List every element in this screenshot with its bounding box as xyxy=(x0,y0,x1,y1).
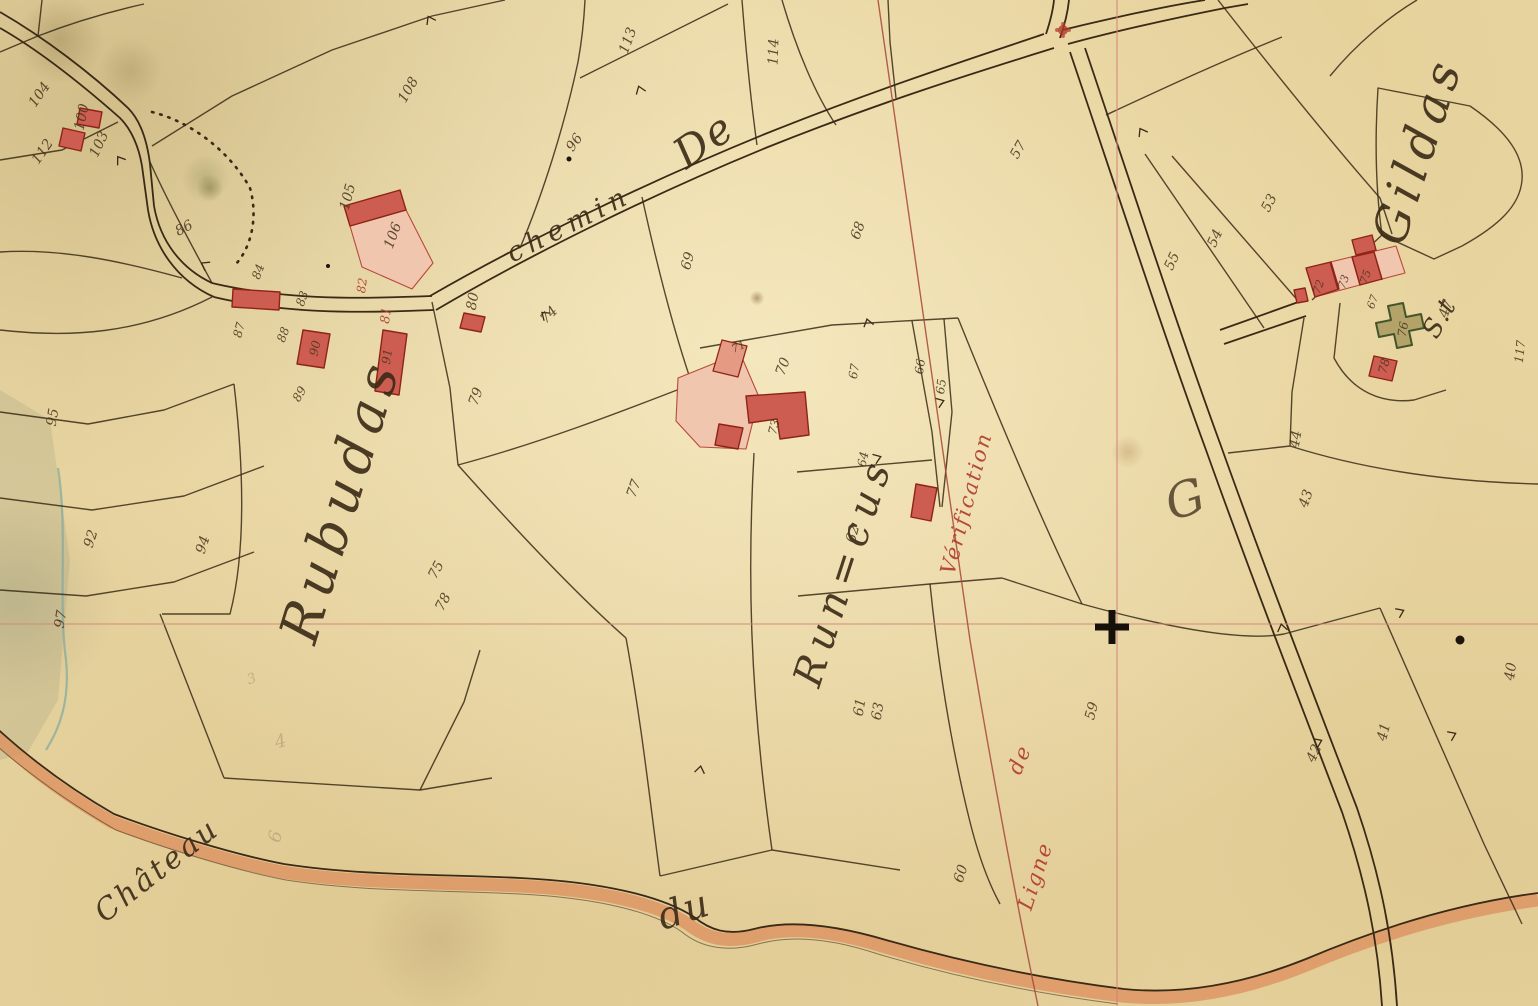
parcel-number: 77 xyxy=(624,477,645,499)
parcel-number: 80 xyxy=(464,291,483,311)
parcel-boundary xyxy=(224,778,492,790)
road-edge xyxy=(1224,316,1306,344)
place-label-rubudas: Rubudas xyxy=(267,349,414,651)
building xyxy=(232,289,280,310)
parcel-boundary xyxy=(458,385,690,465)
boundary-tick xyxy=(1447,729,1458,741)
parcel-boundary xyxy=(1218,0,1392,234)
parcel-number: 40 xyxy=(1502,661,1520,682)
building xyxy=(460,313,485,332)
calvary-symbol xyxy=(1067,28,1071,32)
parcel-number: 66 xyxy=(912,358,928,375)
parcel-number: 3 xyxy=(245,670,259,688)
parcel-number: 97 xyxy=(52,609,71,629)
parcel-number: 104 xyxy=(26,79,54,110)
parcel-number: 70 xyxy=(773,355,794,377)
ink-dot xyxy=(1456,636,1465,645)
parcel-number: 88 xyxy=(274,325,293,344)
parcel-number: 55 xyxy=(1161,250,1183,273)
parcel-boundary xyxy=(1172,156,1300,303)
parcel-number: 63 xyxy=(869,701,888,721)
road-edge xyxy=(1085,48,1397,1006)
parcel-boundary xyxy=(1380,608,1522,924)
parcel-boundary xyxy=(432,302,458,465)
parcel-number: 91 xyxy=(379,348,395,365)
parcel-number: 41 xyxy=(1374,721,1394,743)
road-edge xyxy=(1068,4,1248,44)
ink-dot xyxy=(326,264,330,268)
boundary-tick xyxy=(1395,606,1406,618)
road-edge xyxy=(1062,0,1205,30)
parcel-number: 87 xyxy=(230,320,248,339)
parcel-number: 94 xyxy=(193,534,214,556)
parcel-number: 89 xyxy=(290,384,310,405)
parcel-number: 6 xyxy=(264,828,287,844)
parcel-boundary xyxy=(0,251,182,278)
parcel-boundary xyxy=(930,584,1000,904)
place-label-gildas: Gildas xyxy=(1361,49,1475,252)
parcel-number: 43 xyxy=(1295,487,1317,510)
building xyxy=(1294,288,1308,303)
parcel-boundary xyxy=(38,4,144,36)
parcel-boundary xyxy=(162,384,242,614)
parcel-number: 81 xyxy=(378,306,395,324)
parcel-number: 68 xyxy=(848,219,869,241)
parcel-number: 82 xyxy=(354,277,370,294)
parcel-number: 100 xyxy=(71,102,92,132)
building xyxy=(715,424,743,449)
parcel-number: 86 xyxy=(172,217,195,240)
parcel-boundary xyxy=(420,650,480,790)
parcel-number: 75 xyxy=(425,558,448,581)
parcel-boundary xyxy=(642,197,692,384)
boundary-tick xyxy=(199,259,210,271)
road-edge xyxy=(1046,0,1054,34)
parcel-boundary xyxy=(660,850,900,876)
parcel-number: 74 xyxy=(537,303,561,327)
parcel-number: 96 xyxy=(563,131,586,155)
parcel-number: 103 xyxy=(86,129,112,160)
boundary-tick xyxy=(114,154,126,165)
parcel-number: 113 xyxy=(616,25,640,56)
parcel-number: 60 xyxy=(951,863,972,885)
boundary-tick xyxy=(695,765,706,774)
parcel-number: 108 xyxy=(395,74,422,105)
cadastral-map: RubudasRun=cuscheminDeS.tGildasChâteaudu… xyxy=(0,0,1538,1006)
parcel-number: 92 xyxy=(81,528,102,550)
parcel-number: 83 xyxy=(293,289,312,308)
parcel-boundary xyxy=(0,297,212,333)
parcel-boundary xyxy=(751,453,772,850)
parcel-number: 44 xyxy=(1286,429,1305,450)
parcel-number: 53 xyxy=(1258,191,1281,214)
calvary-symbol xyxy=(1061,22,1065,26)
bottom-road xyxy=(0,730,1538,998)
boundary-tick xyxy=(634,85,646,95)
place-label-verification: Vérification xyxy=(936,429,997,577)
parcel-number: 117 xyxy=(1512,339,1528,364)
parcel-boundary xyxy=(782,0,836,125)
calvary-symbol xyxy=(1061,34,1065,38)
calvary-symbol xyxy=(1058,25,1068,35)
parcel-boundary xyxy=(626,638,660,876)
rock-wash xyxy=(0,390,70,760)
place-label-ligne-de: de xyxy=(1003,741,1036,778)
parcel-boundary xyxy=(160,614,224,778)
place-label-runcus: Run=cus xyxy=(784,450,902,693)
parcel-boundary xyxy=(912,321,940,507)
parcel-number: 114 xyxy=(766,38,783,65)
road-edge xyxy=(436,48,1054,310)
parcel-number: 79 xyxy=(466,385,487,407)
place-label-flourish-g: G xyxy=(1158,467,1212,532)
parcel-number: 95 xyxy=(44,407,63,427)
cadastral-map-canvas: RubudasRun=cuscheminDeS.tGildasChâteaudu… xyxy=(0,0,1538,1006)
parcel-boundary xyxy=(458,465,626,638)
calvary-symbol xyxy=(1055,28,1059,32)
boundary-tick xyxy=(1136,126,1148,137)
parcel-number: 59 xyxy=(1082,700,1102,721)
parcel-boundary xyxy=(580,4,728,78)
parcel-number: 67 xyxy=(1364,293,1381,311)
parcel-boundary xyxy=(0,0,42,52)
parcel-number: 76 xyxy=(1395,320,1412,338)
parcel-boundary xyxy=(1330,0,1417,76)
parcel-boundary xyxy=(1290,446,1538,484)
place-label-chemin-de: De xyxy=(663,102,743,179)
parcel-number: 78 xyxy=(432,590,455,613)
parcel-number: 57 xyxy=(1007,138,1030,162)
parcel-number: 67 xyxy=(846,362,863,380)
place-label-ligne: Ligne xyxy=(1013,839,1058,914)
ink-dot xyxy=(567,157,572,162)
place-label-chemin: chemin xyxy=(501,180,636,269)
parcel-number: 61 xyxy=(851,697,870,717)
parcel-number: 84 xyxy=(249,262,267,281)
parcel-boundary xyxy=(888,0,896,98)
parcel-number: 4 xyxy=(271,730,288,754)
parcel-boundary xyxy=(152,0,505,146)
parcel-boundary xyxy=(1002,578,1380,636)
building xyxy=(911,484,937,521)
parcel-boundary xyxy=(742,0,757,145)
parcel-number: 69 xyxy=(678,250,698,271)
parcel-number: 65 xyxy=(933,378,949,395)
